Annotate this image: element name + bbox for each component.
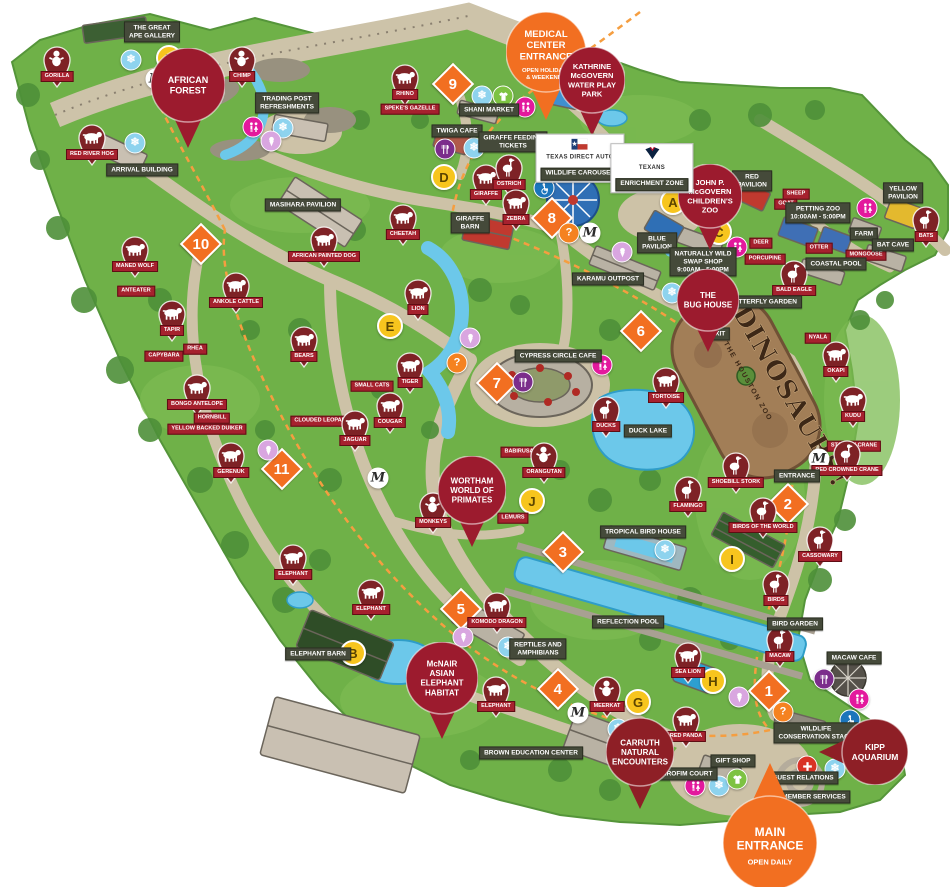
big-pin-line: PARK: [582, 89, 603, 98]
big-pin-shape: KIPPAQUARIUM: [818, 719, 908, 785]
animal-pin-shape: [375, 392, 405, 434]
cypress-circle-cafe-label: CYPRESS CIRCLE CAFE: [515, 349, 602, 362]
big-pin-line: ZOO: [702, 205, 718, 214]
animal-pin-shape: [501, 189, 531, 231]
the-great-ape-gallery-label: THE GREATAPE GALLERY: [124, 21, 180, 42]
big-pin-line: ASIAN: [430, 669, 455, 678]
animal-name-label: ELEPHANT: [274, 569, 312, 580]
numbered-stop-4: 4: [543, 674, 573, 704]
bird-garden-label: BIRD GARDEN: [767, 617, 823, 630]
facility-label-line: KARAMU OUTPOST: [577, 275, 639, 283]
big-pin-line: CHILDREN'S: [687, 196, 733, 205]
animal-name-label: RED RIVER HOG: [66, 149, 118, 160]
restroom-icon: [857, 198, 878, 219]
red-river-hog-pin: RED RIVER HOG: [77, 124, 107, 171]
animal-name-label: GORILLA: [41, 71, 74, 82]
snowflake-icon: ❄: [125, 133, 146, 154]
facility-label-line: ARRIVAL BUILDING: [111, 166, 173, 174]
question-icon: ?: [559, 223, 580, 244]
ducks-pin: DUCKS: [591, 396, 621, 443]
animal-name-label: OTTER: [806, 243, 833, 254]
twiga-cafe-label: TWIGA CAFE: [432, 124, 483, 137]
big-pin-line: BUG HOUSE: [684, 301, 733, 310]
animal-name-label: ELEPHANT: [477, 701, 515, 712]
lion-pin: LION: [403, 279, 433, 326]
big-pin-line: KIPP: [865, 742, 885, 752]
big-pin-shape: McNAIRASIANELEPHANTHABITAT: [406, 642, 478, 740]
enrichment-zone-sign: TEXANSENRICHMENT ZONE: [610, 143, 693, 193]
facility-label-line: TWIGA CAFE: [437, 127, 478, 135]
facility-label-line: BLUE: [642, 235, 672, 243]
facility-label-line: BUTTERFLY GARDEN: [729, 298, 797, 306]
animal-name-label: LION: [407, 304, 428, 315]
elephant-pin: ELEPHANT: [356, 579, 386, 626]
dining-icon: [435, 139, 456, 160]
big-pin-line: McNAIR: [427, 659, 458, 668]
animal-name-label: COUGAR: [374, 417, 406, 428]
red-panda-pin: RED PANDA: [671, 706, 701, 753]
facility-label-line: PAVILION: [642, 243, 672, 251]
big-pin-line: MAIN: [755, 825, 786, 839]
facility-label-line: TROPICAL BIRD HOUSE: [605, 528, 681, 536]
animal-pin-shape: [42, 46, 72, 88]
stop-diamond: 10: [180, 223, 222, 265]
bat-cave-label: BAT CAVE: [872, 238, 914, 251]
letter-stop-j: J: [519, 488, 545, 514]
water-play-park-pin: KATHRINEMcGOVERNWATER PLAYPARK: [559, 47, 625, 142]
coastal-pool-label: COASTAL POOL: [805, 257, 866, 270]
animal-name-label: DUCKS: [592, 421, 620, 432]
letter-stop-d: D: [431, 164, 457, 190]
animal-name-label: TIGER: [398, 377, 423, 388]
animal-pin-shape: [481, 676, 511, 718]
big-pin-line: ENTRANCE: [737, 839, 804, 853]
icecream-icon: [460, 328, 481, 349]
snowflake-icon: ❄: [121, 50, 142, 71]
okapi-pin: OKAPI: [821, 341, 851, 388]
snowflake-icon: ❄: [655, 540, 676, 561]
stop-letter: I: [719, 546, 745, 572]
letter-stop-g: G: [625, 689, 651, 715]
animal-name-label: CAPYBARA: [144, 351, 183, 362]
animal-name-label: KUDU: [841, 411, 865, 422]
animal-name-label: GERENUK: [213, 467, 249, 478]
animal-name-label: RHEA: [183, 344, 207, 355]
brand-box-label: ENRICHMENT ZONE: [615, 178, 688, 191]
animal-pin-shape: [838, 386, 868, 428]
jaguar-pin: JAGUAR: [340, 410, 370, 457]
big-pin-line: AFRICAN: [168, 75, 209, 85]
animal-pin-shape: [673, 642, 703, 684]
texas-flag-icon: ★: [572, 139, 588, 150]
facility-label-line: THE GREAT: [129, 24, 175, 32]
birds-of-the-world-pin: BIRDS OF THE WORLD: [748, 497, 778, 544]
tortoise-pin: TORTOISE: [651, 367, 681, 414]
restroom-icon: [243, 117, 264, 138]
duck-lake-label: DUCK LAKE: [624, 424, 672, 437]
brand-box-title: TEXANS: [615, 165, 688, 171]
speke-s-gazelle-label: SPEKE'S GAZELLE: [381, 104, 440, 115]
stop-number: 5: [457, 601, 465, 618]
animal-pin-shape: [748, 497, 778, 539]
animal-name-label: BALD EAGLE: [772, 285, 816, 296]
animal-pin-shape: [832, 440, 862, 482]
icecream-icon: [729, 687, 750, 708]
stop-diamond: 3: [542, 531, 584, 573]
animal-pin-shape: [821, 341, 851, 383]
facility-label-line: MACAW CAFE: [832, 654, 877, 662]
mcnair-elephant-habitat-pin: McNAIRASIANELEPHANTHABITAT: [406, 642, 478, 745]
letter-stop-i: I: [719, 546, 745, 572]
big-pin-line: FOREST: [170, 85, 207, 95]
facility-label-line: PAVILION: [888, 193, 918, 201]
animal-name-label: PORCUPINE: [745, 254, 786, 265]
reptiles-and-amphibians-label: REPTILES ANDAMPHIBIANS: [509, 638, 566, 659]
animal-name-label: ZEBRA: [503, 214, 530, 225]
stop-letter: D: [431, 164, 457, 190]
arrival-building-label: ARRIVAL BUILDING: [106, 163, 178, 176]
animal-name-label: DEER: [749, 238, 772, 249]
letter-stop-e: E: [377, 313, 403, 339]
facility-label-line: ENTRANCE: [779, 472, 815, 480]
sheep-label: SHEEP: [783, 189, 810, 200]
numbered-stop-3: 3: [548, 537, 578, 567]
big-pin-shape: THEBUG HOUSE: [677, 269, 739, 353]
bug-house-pin: THEBUG HOUSE: [677, 269, 739, 358]
small-cats-label: SMALL CATS: [351, 381, 394, 392]
animal-name-label: SHOEBILL STORK: [708, 477, 764, 488]
stop-number: 7: [493, 375, 501, 392]
brand-box-title: TEXAS DIRECT AUTO: [541, 155, 620, 161]
animal-pin-shape: [403, 279, 433, 321]
animal-pin-shape: [221, 272, 251, 314]
facility-label-line: DUCK LAKE: [629, 427, 667, 435]
animal-name-label: BATS: [915, 231, 938, 242]
animal-name-label: RED CROWNED CRANE: [811, 465, 882, 476]
animal-pin-shape: [289, 326, 319, 368]
dining-icon: [513, 372, 534, 393]
animal-name-label: BIRDS: [763, 595, 788, 606]
animal-name-label: RHINO: [392, 89, 418, 100]
tapir-pin: TAPIR: [157, 300, 187, 347]
wortham-primates-pin: WORTHAMWORLD OFPRIMATES: [438, 456, 506, 553]
big-pin-shape: KATHRINEMcGOVERNWATER PLAYPARK: [559, 47, 625, 137]
yellow-pavilion-label: YELLOWPAVILION: [883, 182, 923, 203]
animal-name-label: AFRICAN PAINTED DOG: [288, 251, 360, 262]
question-icon: ?: [773, 702, 794, 723]
animal-name-label: SEA LION: [671, 667, 705, 678]
facility-label-line: TICKETS: [483, 142, 542, 150]
facility-label-line: COASTAL POOL: [810, 260, 861, 268]
elephant-barn-label: ELEPHANT BARN: [285, 647, 351, 660]
stop-number: 6: [637, 323, 645, 340]
animal-name-label: KOMODO DRAGON: [467, 617, 526, 628]
big-pin-line: WORTHAM: [451, 476, 494, 485]
numbered-stop-9: 9: [438, 69, 468, 99]
cassowary-pin: CASSOWARY: [805, 526, 835, 573]
african-painted-dog-pin: AFRICAN PAINTED DOG: [309, 226, 339, 273]
elephant-pin: ELEPHANT: [481, 676, 511, 723]
red-crowned-crane-pin: RED CROWNED CRANE: [832, 440, 862, 487]
animal-name-label: OKAPI: [823, 366, 848, 377]
macaw-cafe-label: MACAW CAFE: [827, 651, 882, 664]
animal-pin-shape: [591, 396, 621, 438]
kipp-aquarium-pin: KIPPAQUARIUM: [818, 719, 908, 790]
entrance-label: ENTRANCE: [774, 469, 820, 482]
animal-name-label: CHIMP: [229, 71, 255, 82]
big-pin-line: NATURAL: [621, 748, 659, 757]
animal-pin-shape: [671, 706, 701, 748]
facility-label-line: ELEPHANT BARN: [290, 650, 346, 658]
gerenuk-pin: GERENUK: [216, 442, 246, 489]
bears-pin: BEARS: [289, 326, 319, 373]
marker-layer: 1234567891011ABCDEFGHIJ❄❄❄❄❄❄❄❄❄❄❄???MMM…: [0, 0, 950, 887]
stop-number: 8: [548, 210, 556, 227]
stop-letter: E: [377, 313, 403, 339]
facility-label-line: 10:00AM - 5:00PM: [790, 213, 845, 221]
big-pin-shape: MAINENTRANCEOPEN DAILY: [723, 762, 817, 887]
tropical-bird-house-label: TROPICAL BIRD HOUSE: [600, 525, 686, 538]
bats-pin: BATS: [911, 206, 941, 253]
zebra-pin: ZEBRA: [501, 189, 531, 236]
animal-pin-shape: [157, 300, 187, 342]
animal-name-label: MEERKAT: [590, 701, 625, 712]
facility-label-line: APE GALLERY: [129, 32, 175, 40]
otter-label: OTTER: [806, 243, 833, 254]
animal-pin-shape: [911, 206, 941, 248]
deer-label: DEER: [749, 238, 772, 249]
rhea-label: RHEA: [183, 344, 207, 355]
facility-label-line: REFRESHMENTS: [260, 103, 314, 111]
animal-name-label: OSTRICH: [493, 179, 526, 190]
brand-box-label: WILDLIFE CAROUSEL: [541, 167, 620, 180]
animal-pin-shape: [216, 442, 246, 484]
facility-label-line: FARM: [855, 230, 873, 238]
big-pin-line: PRIMATES: [452, 495, 493, 504]
stop-letter: J: [519, 488, 545, 514]
monorail-icon: M: [568, 703, 589, 724]
main-entrance-pin: MAINENTRANCEOPEN DAILY: [723, 762, 817, 887]
zoo-map: DINOSAURS! AT THE HOUSTON ZOO: [0, 0, 950, 887]
animal-name-label: SMALL CATS: [351, 381, 394, 392]
stop-number: 1: [765, 683, 773, 700]
icecream-icon: [612, 242, 633, 263]
hornbill-label: HORNBILL: [194, 413, 230, 424]
animal-name-label: MACAW: [765, 651, 794, 662]
animal-pin-shape: [673, 476, 703, 518]
animal-pin-shape: [120, 236, 150, 278]
restroom-icon: [849, 689, 870, 710]
animal-pin-shape: [340, 410, 370, 452]
orangutan-pin: ORANGUTAN: [529, 442, 559, 489]
stop-diamond: 9: [432, 63, 474, 105]
facility-label-line: CYPRESS CIRCLE CAFE: [520, 352, 597, 360]
birds-pin: BIRDS: [761, 570, 791, 617]
animal-name-label: CHEETAH: [386, 229, 420, 240]
facility-label-line: GIRAFFE FEEDING: [483, 134, 542, 142]
animal-name-label: SPEKE'S GAZELLE: [381, 104, 440, 115]
big-pin-line: MEDICAL: [524, 29, 567, 40]
meerkat-pin: MEERKAT: [592, 676, 622, 723]
monorail-icon: M: [580, 223, 601, 244]
big-pin-line: McGOVERN: [571, 71, 614, 80]
maned-wolf-pin: MANED WOLF: [120, 236, 150, 283]
question-icon: ?: [447, 353, 468, 374]
animal-pin-shape: [388, 204, 418, 246]
cougar-pin: COUGAR: [375, 392, 405, 439]
facility-label-line: PETTING ZOO: [790, 205, 845, 213]
facility-label-line: GIRAFFE: [456, 215, 485, 223]
svg-text:★: ★: [572, 140, 578, 148]
animal-pin-shape: [651, 367, 681, 409]
stop-diamond: 6: [620, 310, 662, 352]
animal-name-label: MANED WOLF: [112, 261, 158, 272]
stop-letter: G: [625, 689, 651, 715]
stop-number: 2: [784, 496, 792, 513]
animal-pin-shape: [77, 124, 107, 166]
trading-post-refreshments-label: TRADING POSTREFRESHMENTS: [255, 92, 319, 113]
brown-education-center-label: BROWN EDUCATION CENTER: [479, 746, 583, 759]
yellow-backed-duiker-label: YELLOW BACKED DUIKER: [167, 424, 246, 435]
cheetah-pin: CHEETAH: [388, 204, 418, 251]
anteater-label: ANTEATER: [117, 286, 155, 297]
big-pin-line: AQUARIUM: [852, 752, 899, 762]
ankole-cattle-pin: ANKOLE CATTLE: [221, 272, 251, 319]
facility-label-line: SWAP SHOP: [675, 258, 732, 266]
animal-name-label: ANKOLE CATTLE: [209, 297, 263, 308]
animal-name-label: SHEEP: [783, 189, 810, 200]
animal-pin-shape: [278, 544, 308, 586]
animal-name-label: YELLOW BACKED DUIKER: [167, 424, 246, 435]
big-pin-line: ELEPHANT: [420, 679, 463, 688]
big-pin-line: HABITAT: [425, 688, 459, 697]
reflection-pool-label: REFLECTION POOL: [592, 615, 664, 628]
porcupine-label: PORCUPINE: [745, 254, 786, 265]
dining-icon: [814, 669, 835, 690]
sea-lion-pin: SEA LION: [673, 642, 703, 689]
icecream-icon: [261, 131, 282, 152]
facility-label-line: YELLOW: [888, 185, 918, 193]
numbered-stop-7: 7: [482, 368, 512, 398]
animal-pin-shape: [182, 374, 212, 416]
animal-pin-shape: [356, 579, 386, 621]
facility-label-line: REPTILES AND: [514, 641, 561, 649]
animal-name-label: BONGO ANTELOPE: [167, 399, 227, 410]
animal-pin-shape: [309, 226, 339, 268]
animal-name-label: BEARS: [290, 351, 317, 362]
gorilla-pin: GORILLA: [42, 46, 72, 93]
karamu-outpost-label: KARAMU OUTPOST: [572, 272, 644, 285]
facility-label-line: BAT CAVE: [877, 241, 909, 249]
animal-pin-shape: [721, 452, 751, 494]
big-pin-line: JOHN P.: [695, 178, 724, 187]
big-pin-line: WORLD OF: [450, 486, 494, 495]
big-pin-line: WATER PLAY: [568, 80, 616, 89]
animal-name-label: HORNBILL: [194, 413, 230, 424]
facility-label-line: BARN: [456, 223, 485, 231]
animal-name-label: ELEPHANT: [352, 604, 390, 615]
numbered-stop-6: 6: [626, 316, 656, 346]
macaw-pin: MACAW: [765, 626, 795, 673]
big-pin-shape: AFRICANFOREST: [151, 48, 225, 149]
animal-name-label: BIRDS OF THE WORLD: [728, 522, 797, 533]
shoebill-stork-pin: SHOEBILL STORK: [721, 452, 751, 499]
animal-name-label: CASSOWARY: [798, 551, 842, 562]
big-pin-line: THE: [700, 291, 717, 300]
animal-name-label: TAPIR: [160, 325, 184, 336]
animal-pin-shape: [529, 442, 559, 484]
animal-pin-shape: [805, 526, 835, 568]
african-forest-pin: AFRICANFOREST: [151, 48, 225, 154]
chimp-pin: CHIMP: [227, 46, 257, 93]
animal-pin-shape: [390, 64, 420, 106]
animal-name-label: ORANGUTAN: [522, 467, 565, 478]
komodo-dragon-pin: KOMODO DRAGON: [482, 592, 512, 639]
facility-label-line: MASIHARA PAVILION: [270, 201, 336, 209]
animal-pin-shape: [227, 46, 257, 88]
big-pin-subline: OPEN DAILY: [748, 858, 793, 867]
capybara-label: CAPYBARA: [144, 351, 183, 362]
icecream-icon: [258, 440, 279, 461]
facility-label-line: BROWN EDUCATION CENTER: [484, 749, 578, 757]
big-pin-line: McGOVERN: [689, 187, 732, 196]
animal-name-label: FLAMINGO: [669, 501, 706, 512]
big-pin-shape: CARRUTHNATURALENCOUNTERS: [606, 718, 674, 810]
stop-number: 9: [449, 76, 457, 93]
big-pin-shape: WORTHAMWORLD OFPRIMATES: [438, 456, 506, 548]
carruth-natural-encounters-pin: CARRUTHNATURALENCOUNTERS: [606, 718, 674, 815]
masihara-pavilion-label: MASIHARA PAVILION: [265, 198, 341, 211]
numbered-stop-10: 10: [186, 229, 216, 259]
animal-pin-shape: [761, 570, 791, 612]
big-pin-line: ENCOUNTERS: [612, 757, 669, 766]
animal-pin-shape: [482, 592, 512, 634]
stop-number: 3: [559, 544, 567, 561]
animal-name-label: ANTEATER: [117, 286, 155, 297]
facility-label-line: REFLECTION POOL: [597, 618, 659, 626]
animal-pin-shape: [395, 352, 425, 394]
animal-pin-shape: [592, 676, 622, 718]
giraffe-barn-label: GIRAFFEBARN: [451, 212, 490, 233]
monorail-icon: M: [368, 468, 389, 489]
stop-number: 10: [193, 236, 210, 253]
flamingo-pin: FLAMINGO: [673, 476, 703, 523]
petting-zoo-10-00am-5-00pm-label: PETTING ZOO10:00AM - 5:00PM: [785, 202, 850, 223]
elephant-pin: ELEPHANT: [278, 544, 308, 591]
kudu-pin: KUDU: [838, 386, 868, 433]
facility-label-line: BIRD GARDEN: [772, 620, 818, 628]
animal-name-label: TORTOISE: [648, 392, 684, 403]
animal-name-label: JAGUAR: [339, 435, 370, 446]
texans-bull-icon: [643, 146, 661, 160]
stop-number: 4: [554, 681, 562, 698]
facility-label-line: TRADING POST: [260, 95, 314, 103]
stop-number: 11: [274, 460, 290, 477]
animal-pin-shape: [765, 626, 795, 668]
big-pin-line: CARRUTH: [620, 738, 660, 747]
facility-label-line: AMPHIBIANS: [514, 649, 561, 657]
big-pin-line: KATHRINE: [573, 62, 611, 71]
